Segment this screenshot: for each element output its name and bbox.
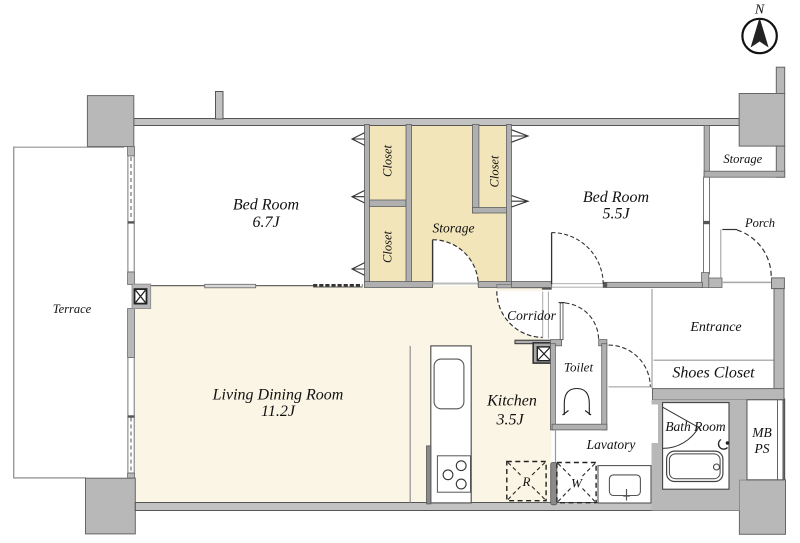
svg-text:Corridor: Corridor — [507, 308, 557, 323]
svg-text:5.5J: 5.5J — [602, 206, 630, 223]
svg-text:Terrace: Terrace — [53, 302, 92, 316]
svg-text:Bath Room: Bath Room — [665, 419, 726, 434]
svg-text:6.7J: 6.7J — [252, 214, 280, 231]
svg-text:Entrance: Entrance — [689, 320, 741, 335]
svg-text:R: R — [522, 474, 531, 489]
svg-text:11.2J: 11.2J — [261, 403, 296, 420]
svg-text:Closet: Closet — [381, 231, 395, 263]
svg-text:Shoes Closet: Shoes Closet — [672, 365, 755, 382]
svg-text:3.5J: 3.5J — [495, 412, 524, 429]
svg-text:Toilet: Toilet — [564, 360, 594, 375]
svg-text:Bed Room: Bed Room — [583, 189, 649, 206]
svg-text:Storage: Storage — [433, 221, 475, 236]
svg-text:W: W — [571, 476, 583, 491]
svg-text:MB: MB — [751, 425, 772, 440]
svg-text:Porch: Porch — [744, 216, 775, 230]
svg-text:Bed Room: Bed Room — [233, 197, 299, 214]
svg-text:Living Dining Room: Living Dining Room — [212, 387, 344, 404]
svg-text:Closet: Closet — [381, 145, 395, 177]
svg-text:PS: PS — [754, 441, 770, 456]
svg-text:N: N — [754, 3, 765, 18]
svg-text:Storage: Storage — [723, 152, 762, 166]
svg-text:Kitchen: Kitchen — [486, 393, 537, 410]
svg-text:Lavatory: Lavatory — [586, 437, 636, 452]
svg-text:Closet: Closet — [487, 155, 501, 187]
